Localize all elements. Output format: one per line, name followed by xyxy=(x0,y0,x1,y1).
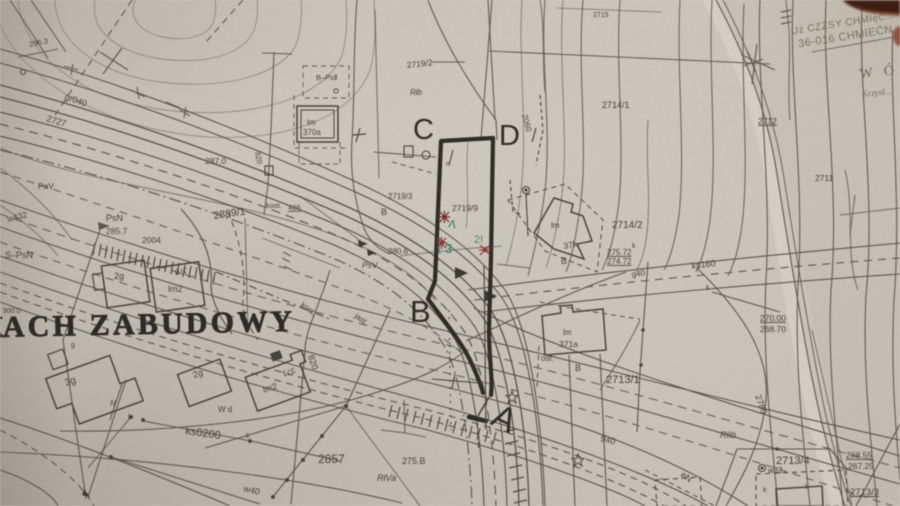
svg-text:270.00: 270.00 xyxy=(760,313,786,323)
svg-text:2714/2: 2714/2 xyxy=(612,220,643,231)
svg-text:267.25: 267.25 xyxy=(848,461,874,471)
svg-text:274.72: 274.72 xyxy=(607,257,632,266)
svg-text:B: B xyxy=(561,256,567,266)
svg-text:ACH ZABUDOWY: ACH ZABUDOWY xyxy=(2,305,295,344)
svg-text:2719/3: 2719/3 xyxy=(388,192,413,201)
svg-text:3: 3 xyxy=(445,241,452,256)
svg-text:k: k xyxy=(805,484,809,491)
svg-text:2!: 2! xyxy=(474,234,483,246)
svg-text:B: B xyxy=(410,294,431,329)
svg-text:PsV: PsV xyxy=(362,260,379,270)
svg-text:268.55: 268.55 xyxy=(846,450,872,460)
svg-text:B–PsⅡ: B–PsⅡ xyxy=(316,73,338,82)
svg-text:280.6: 280.6 xyxy=(388,247,409,256)
svg-text:2713/1: 2713/1 xyxy=(606,374,640,386)
svg-text:kost.: kost. xyxy=(266,201,282,210)
svg-text:k: k xyxy=(763,487,767,494)
svg-text:w32: w32 xyxy=(767,466,783,475)
svg-text:n: n xyxy=(446,161,450,168)
svg-text:2g: 2g xyxy=(114,271,124,281)
svg-text:k: k xyxy=(246,433,250,440)
svg-text:D: D xyxy=(499,120,520,152)
svg-text:k: k xyxy=(632,243,636,250)
svg-text:g: g xyxy=(71,342,75,349)
svg-text:osf.: osf. xyxy=(541,354,554,363)
svg-text:B: B xyxy=(381,207,387,217)
svg-text:275.B: 275.B xyxy=(402,456,426,466)
svg-text:2714/1: 2714/1 xyxy=(602,100,630,110)
svg-text:S–PsN: S–PsN xyxy=(5,250,33,260)
svg-text:2857: 2857 xyxy=(318,452,345,466)
svg-text:371a: 371a xyxy=(559,339,578,349)
svg-text:268.70: 268.70 xyxy=(760,324,786,334)
svg-text:lm: lm xyxy=(551,221,560,230)
svg-text:2715: 2715 xyxy=(593,12,609,19)
svg-text:k: k xyxy=(128,414,132,421)
svg-text:g40: g40 xyxy=(631,268,646,279)
svg-text:k: k xyxy=(706,285,710,292)
svg-text:RłVa: RłVa xyxy=(377,473,396,483)
svg-text:2719/9: 2719/9 xyxy=(452,203,478,213)
svg-text:RłIb: RłIb xyxy=(720,430,736,440)
svg-text:N: N xyxy=(110,399,116,408)
svg-text:285.7: 285.7 xyxy=(106,226,128,236)
svg-text:2711: 2711 xyxy=(815,173,834,183)
svg-text:PaV: PaV xyxy=(38,181,54,191)
svg-text:275.72: 275.72 xyxy=(607,248,632,257)
svg-text:PsN: PsN xyxy=(106,213,123,223)
svg-text:[: [ xyxy=(438,242,441,254)
svg-text:Rłb: Rłb xyxy=(410,88,423,97)
svg-text:lm: lm xyxy=(563,328,572,337)
svg-text:2713/3: 2713/3 xyxy=(850,487,879,498)
svg-text:C: C xyxy=(413,114,434,146)
svg-text:2004: 2004 xyxy=(142,235,161,245)
svg-text:W d: W d xyxy=(218,405,232,414)
svg-text:B: B xyxy=(575,363,581,373)
svg-text:426: 426 xyxy=(288,203,301,212)
svg-text:lm2: lm2 xyxy=(168,284,183,294)
svg-text:lm: lm xyxy=(307,118,316,127)
svg-text:287.0: 287.0 xyxy=(205,156,227,166)
svg-text:370a: 370a xyxy=(303,128,321,137)
